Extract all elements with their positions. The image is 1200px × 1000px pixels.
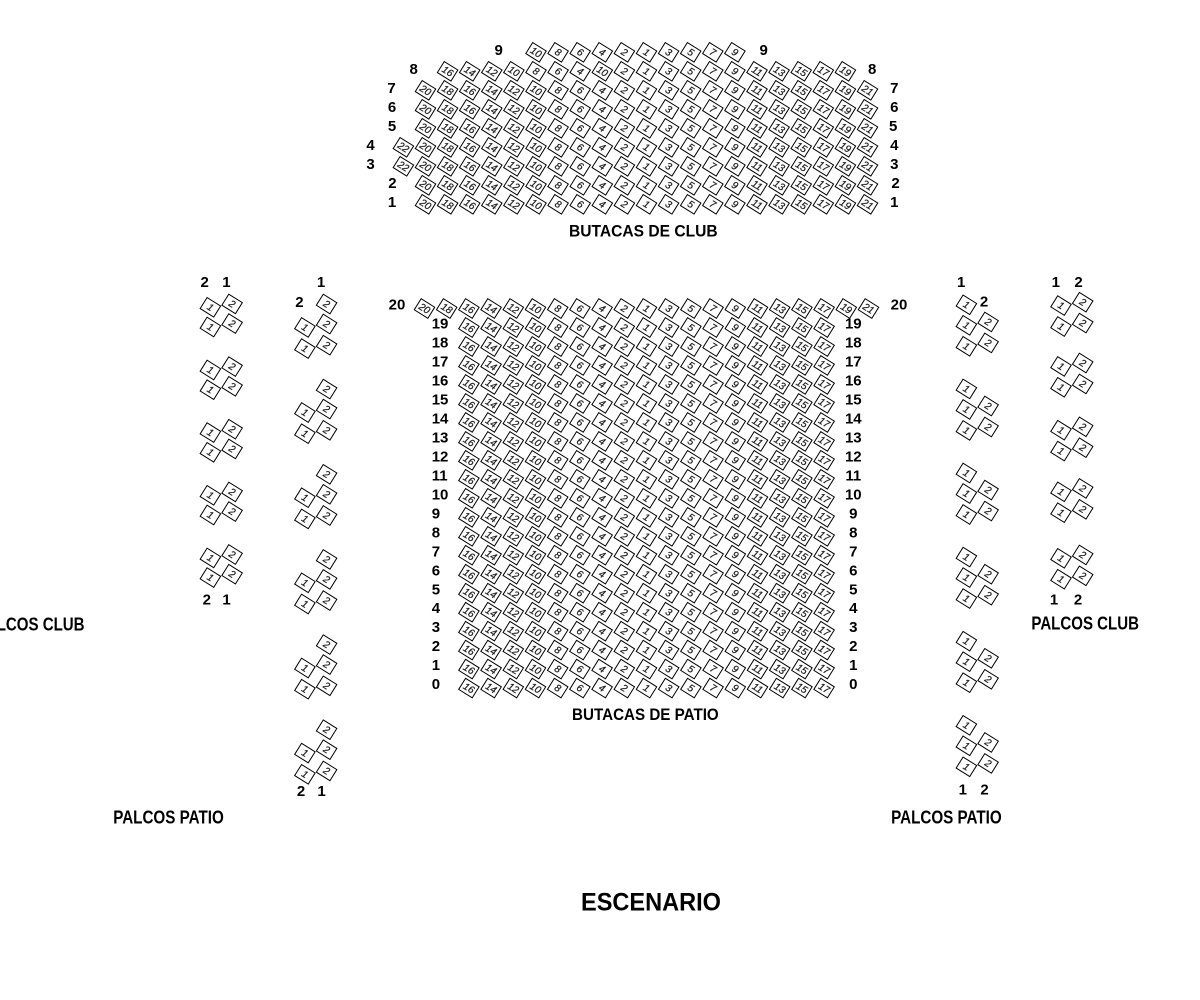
- svg-text:PALCOS CLUB: PALCOS CLUB: [1031, 614, 1139, 634]
- svg-text:20: 20: [389, 297, 406, 314]
- svg-text:8: 8: [868, 61, 876, 78]
- svg-text:10: 10: [845, 486, 862, 503]
- svg-text:16: 16: [845, 372, 862, 389]
- svg-text:7: 7: [890, 80, 898, 97]
- svg-text:1: 1: [959, 781, 967, 798]
- svg-text:1: 1: [1052, 274, 1060, 291]
- svg-text:2: 2: [388, 175, 396, 192]
- svg-text:2: 2: [201, 274, 209, 291]
- svg-text:14: 14: [845, 410, 862, 427]
- svg-text:6: 6: [890, 99, 898, 116]
- svg-text:2: 2: [891, 175, 899, 192]
- svg-text:0: 0: [432, 676, 440, 693]
- svg-text:7: 7: [387, 80, 395, 97]
- svg-text:1: 1: [1050, 591, 1058, 608]
- svg-text:11: 11: [845, 467, 861, 484]
- svg-text:17: 17: [432, 353, 449, 370]
- svg-text:BUTACAS DE CLUB: BUTACAS DE CLUB: [569, 222, 718, 241]
- svg-text:4: 4: [890, 137, 899, 154]
- svg-text:3: 3: [366, 156, 374, 173]
- svg-text:15: 15: [432, 391, 449, 408]
- svg-text:5: 5: [889, 118, 897, 135]
- svg-text:9: 9: [495, 42, 503, 59]
- svg-text:11: 11: [432, 467, 448, 484]
- svg-text:19: 19: [845, 316, 862, 333]
- svg-text:1: 1: [222, 592, 230, 609]
- svg-text:15: 15: [845, 391, 862, 408]
- svg-text:2: 2: [297, 783, 305, 800]
- svg-text:18: 18: [432, 335, 449, 352]
- svg-text:9: 9: [760, 42, 768, 59]
- svg-text:3: 3: [432, 619, 440, 636]
- svg-text:PALCOS PATIO: PALCOS PATIO: [113, 808, 224, 828]
- svg-text:2: 2: [980, 293, 988, 310]
- svg-text:PALCOS CLUB: PALCOS CLUB: [0, 615, 84, 635]
- svg-text:1: 1: [957, 274, 965, 291]
- svg-text:5: 5: [388, 118, 396, 135]
- svg-text:4: 4: [849, 600, 858, 617]
- svg-text:1: 1: [317, 274, 325, 291]
- svg-text:8: 8: [432, 524, 440, 541]
- svg-text:8: 8: [410, 61, 418, 78]
- svg-text:ESCENARIO: ESCENARIO: [581, 889, 721, 917]
- svg-text:5: 5: [432, 581, 440, 598]
- svg-text:5: 5: [849, 581, 857, 598]
- svg-text:1: 1: [388, 194, 396, 211]
- svg-text:13: 13: [845, 429, 862, 446]
- svg-text:1: 1: [849, 657, 857, 674]
- svg-text:1: 1: [890, 194, 898, 211]
- svg-text:0: 0: [849, 676, 857, 693]
- svg-text:10: 10: [432, 486, 449, 503]
- svg-text:3: 3: [890, 156, 898, 173]
- svg-text:1: 1: [317, 783, 325, 800]
- svg-text:PALCOS PATIO: PALCOS PATIO: [891, 808, 1002, 828]
- svg-text:2: 2: [295, 294, 303, 311]
- svg-text:4: 4: [432, 600, 441, 617]
- svg-text:7: 7: [432, 543, 440, 560]
- svg-text:4: 4: [366, 137, 375, 154]
- svg-text:8: 8: [849, 524, 857, 541]
- svg-text:6: 6: [388, 99, 396, 116]
- svg-text:2: 2: [1074, 591, 1082, 608]
- svg-text:20: 20: [891, 297, 908, 314]
- svg-text:12: 12: [432, 448, 449, 465]
- svg-text:2: 2: [432, 638, 440, 655]
- svg-text:1: 1: [432, 657, 440, 674]
- svg-text:2: 2: [849, 638, 857, 655]
- svg-text:9: 9: [432, 505, 440, 522]
- svg-text:1: 1: [222, 274, 230, 291]
- svg-text:7: 7: [849, 543, 857, 560]
- svg-text:6: 6: [432, 562, 440, 579]
- svg-text:6: 6: [849, 562, 857, 579]
- svg-text:14: 14: [432, 410, 449, 427]
- svg-text:13: 13: [432, 429, 449, 446]
- svg-text:2: 2: [980, 781, 988, 798]
- svg-text:12: 12: [845, 448, 862, 465]
- svg-text:17: 17: [845, 353, 862, 370]
- svg-text:3: 3: [849, 619, 857, 636]
- svg-text:2: 2: [1074, 274, 1082, 291]
- svg-text:19: 19: [432, 316, 449, 333]
- svg-text:9: 9: [849, 505, 857, 522]
- svg-text:16: 16: [432, 372, 449, 389]
- svg-text:BUTACAS DE PATIO: BUTACAS DE PATIO: [572, 705, 719, 724]
- svg-text:18: 18: [845, 335, 862, 352]
- svg-text:2: 2: [203, 592, 211, 609]
